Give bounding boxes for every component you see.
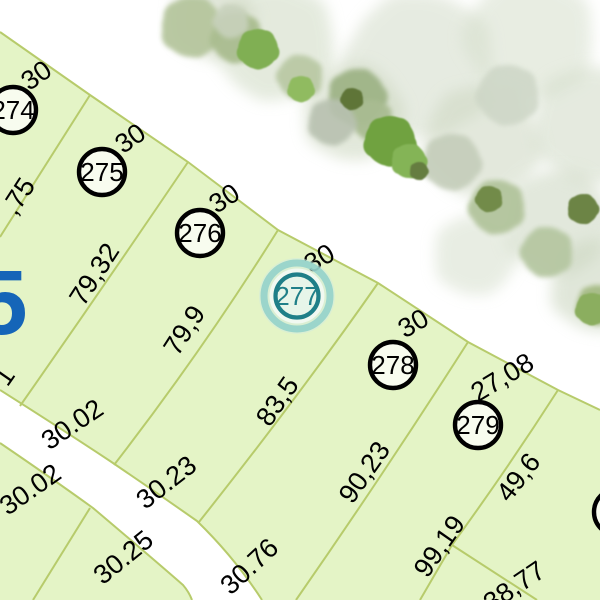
plot-number: 277 <box>275 281 318 311</box>
dimension-label: 5 <box>0 252 28 354</box>
plot-marker-274[interactable]: 274 <box>0 87 36 133</box>
plot-marker-278[interactable]: 278 <box>370 342 416 388</box>
plot-marker-277[interactable]: 277 <box>259 258 335 334</box>
plot-number: 275 <box>80 157 123 187</box>
plot-number: 276 <box>178 218 221 248</box>
plot-marker-275[interactable]: 275 <box>79 149 125 195</box>
map-canvas: 303030303027,08,7579,3279,983,590,2399,1… <box>0 0 600 600</box>
plot-marker-276[interactable]: 276 <box>177 210 223 256</box>
plot-number: 278 <box>371 350 414 380</box>
plot-marker-279[interactable]: 279 <box>455 402 501 448</box>
plot-number: 279 <box>456 410 499 440</box>
map-viewport: 303030303027,08,7579,3279,983,590,2399,1… <box>0 0 600 600</box>
plot-number: 274 <box>0 95 35 125</box>
